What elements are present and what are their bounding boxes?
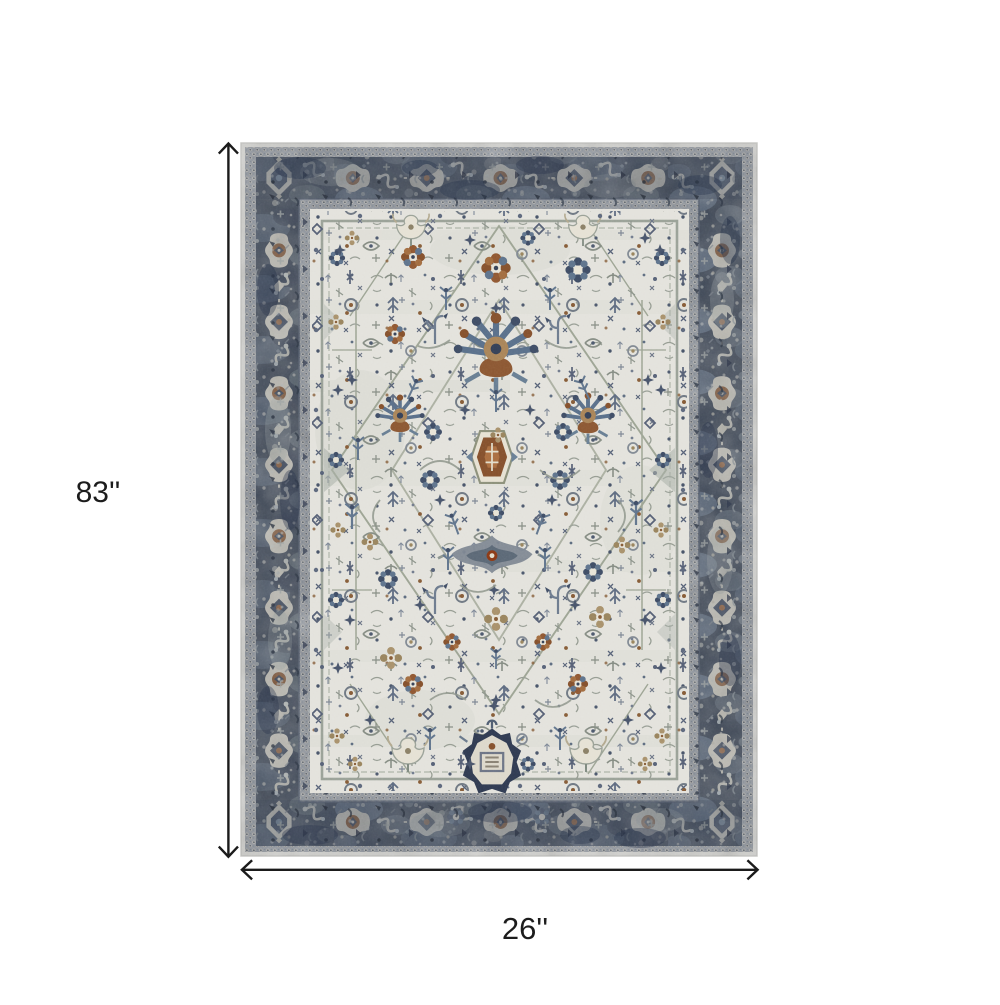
svg-text:26'': 26'' [502, 911, 548, 946]
svg-text:83'': 83'' [76, 476, 121, 509]
